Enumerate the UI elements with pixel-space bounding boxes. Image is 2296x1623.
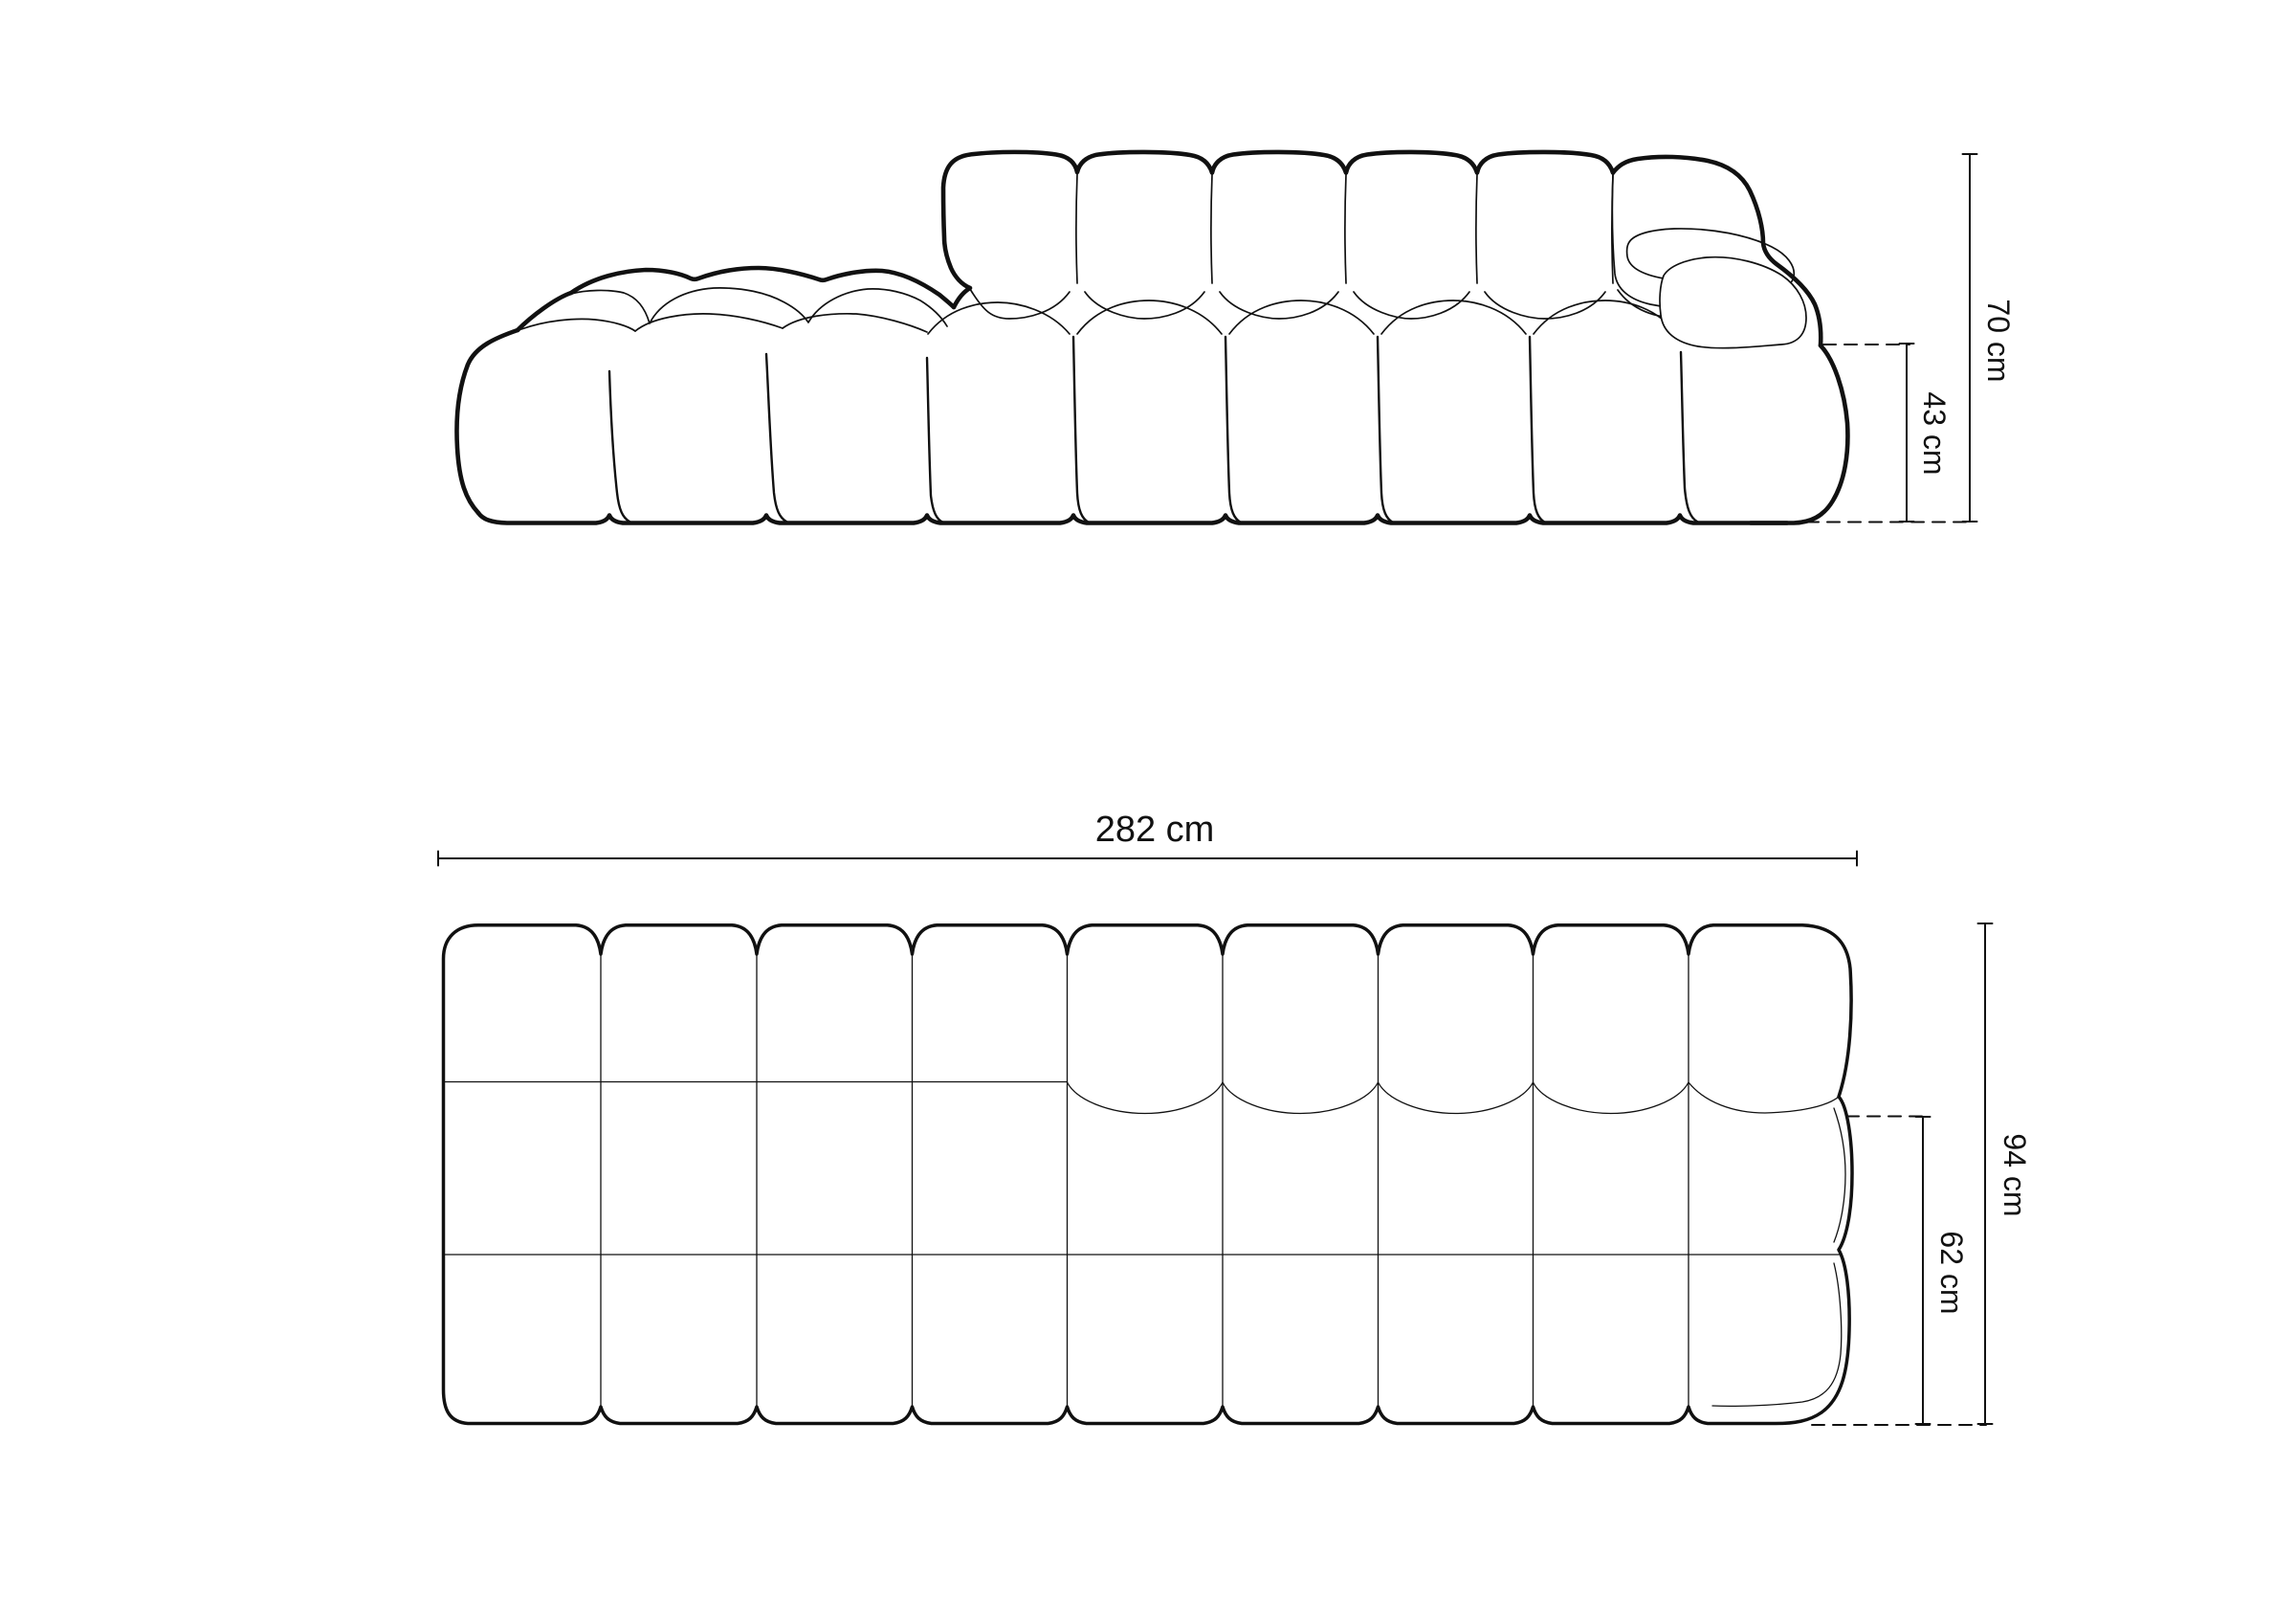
svg-text:43 cm: 43 cm — [1917, 391, 1952, 475]
svg-text:282 cm: 282 cm — [1095, 810, 1215, 850]
svg-text:70 cm: 70 cm — [1981, 299, 2016, 382]
svg-text:94 cm: 94 cm — [1998, 1133, 2032, 1216]
svg-text:62 cm: 62 cm — [1934, 1231, 1969, 1314]
